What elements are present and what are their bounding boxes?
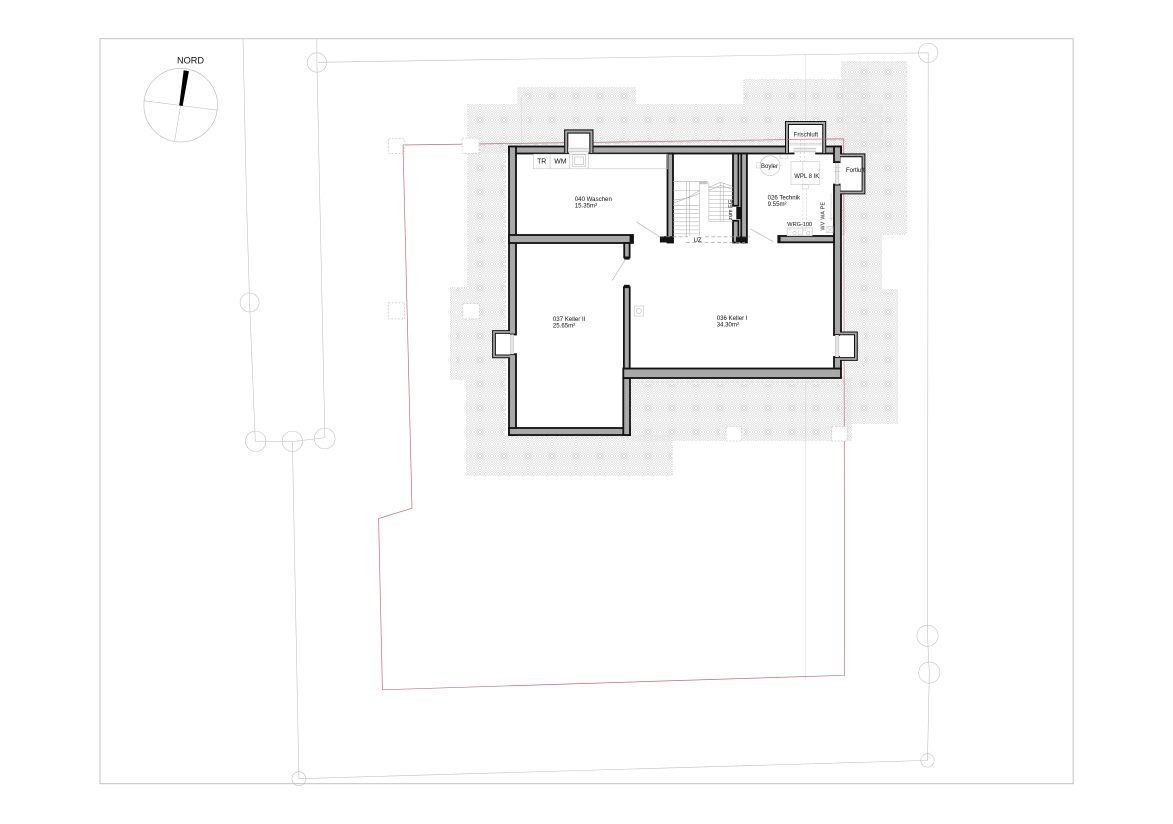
svg-text:UZ: UZ xyxy=(693,237,701,244)
svg-text:Frischluft: Frischluft xyxy=(794,132,819,138)
svg-text:zum EG: zum EG xyxy=(728,200,734,220)
svg-text:9.55m²: 9.55m² xyxy=(768,201,787,208)
svg-text:15.35m²: 15.35m² xyxy=(575,202,597,209)
svg-text:WRG-100: WRG-100 xyxy=(787,222,812,228)
svg-text:TR: TR xyxy=(537,158,546,165)
svg-text:Boyler: Boyler xyxy=(761,164,778,170)
svg-text:WV WA PE: WV WA PE xyxy=(820,201,826,230)
svg-text:WM: WM xyxy=(554,158,567,165)
svg-text:25.65m²: 25.65m² xyxy=(553,322,575,329)
svg-text:Fortluft: Fortluft xyxy=(846,168,865,174)
svg-text:NORD: NORD xyxy=(177,56,204,66)
svg-text:WPL 8 IK: WPL 8 IK xyxy=(794,174,819,180)
svg-text:34.30m²: 34.30m² xyxy=(717,322,739,329)
